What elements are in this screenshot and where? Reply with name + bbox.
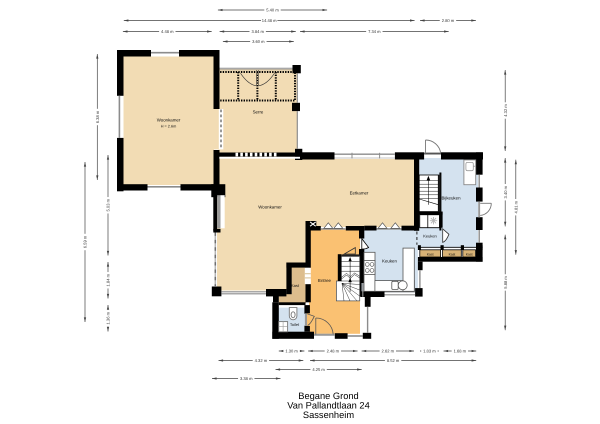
svg-text:14.48 m: 14.48 m	[262, 18, 277, 23]
svg-text:3.38 m: 3.38 m	[240, 376, 253, 381]
svg-text:Begane Grond: Begane Grond	[298, 391, 358, 401]
svg-text:Serre: Serre	[253, 110, 264, 115]
svg-text:5.88 m: 5.88 m	[503, 276, 508, 289]
svg-text:Keuken: Keuken	[382, 259, 397, 264]
svg-text:1.83 m: 1.83 m	[423, 349, 436, 354]
svg-text:3.84 m: 3.84 m	[251, 29, 264, 34]
svg-text:4.32 m: 4.32 m	[255, 358, 268, 363]
svg-text:8.52 m: 8.52 m	[387, 358, 400, 363]
svg-text:1.68 m: 1.68 m	[454, 349, 467, 354]
svg-text:6.38 m: 6.38 m	[95, 110, 100, 123]
svg-text:Sassenheim: Sassenheim	[303, 410, 354, 420]
svg-text:Eetkamer: Eetkamer	[350, 191, 369, 196]
svg-text:Kast: Kast	[427, 252, 434, 256]
svg-text:6.59 m: 6.59 m	[83, 235, 88, 248]
svg-text:1.30 m: 1.30 m	[285, 349, 298, 354]
svg-text:Keuken: Keuken	[423, 234, 437, 239]
svg-text:2.48 m: 2.48 m	[327, 349, 340, 354]
svg-text:7.34 m: 7.34 m	[368, 29, 381, 34]
svg-text:Entree: Entree	[318, 278, 331, 283]
svg-text:1.36 m: 1.36 m	[106, 311, 111, 324]
svg-text:3.60 m: 3.60 m	[252, 39, 265, 44]
svg-text:2.62 m: 2.62 m	[382, 349, 395, 354]
svg-text:Kast: Kast	[449, 252, 456, 256]
svg-text:4.25 m: 4.25 m	[312, 367, 325, 372]
svg-text:5.03 m: 5.03 m	[106, 198, 111, 211]
svg-text:Woonkamer: Woonkamer	[258, 205, 282, 210]
svg-text:Woonkamer: Woonkamer	[157, 118, 181, 123]
svg-text:3.40 m: 3.40 m	[503, 185, 508, 198]
svg-text:H = 2.6m: H = 2.6m	[161, 125, 177, 129]
svg-text:Bijkeuken: Bijkeuken	[441, 196, 461, 201]
svg-text:5.40 m: 5.40 m	[266, 8, 279, 13]
svg-text:4.48 m: 4.48 m	[161, 29, 174, 34]
svg-text:4.81 m: 4.81 m	[513, 200, 518, 213]
svg-text:2.80 m: 2.80 m	[442, 18, 455, 23]
svg-text:Toilet: Toilet	[290, 322, 300, 327]
svg-text:Kast: Kast	[291, 283, 300, 288]
svg-text:1.84 m: 1.84 m	[106, 273, 111, 286]
svg-text:Kast: Kast	[466, 252, 473, 256]
svg-text:4.32 m: 4.32 m	[503, 104, 508, 117]
